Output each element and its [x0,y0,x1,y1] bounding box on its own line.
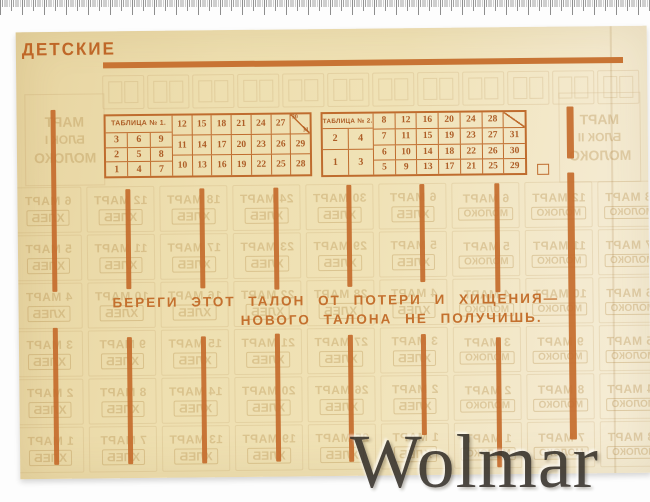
ruler-long-ticks [0,0,650,15]
table-cell: 4 [347,129,373,149]
ghost-coupon-text: 30 МАРТХЛЕБ [312,191,366,224]
ghost-coupon: 6 МАРТХЛЕБ [378,183,446,230]
ghost-glyph-box [349,79,363,101]
table-row: 7111519232731 [374,127,525,145]
table-title: ТАБЛИЦА № 1. [106,116,172,133]
table-cell: 29 [290,134,310,154]
table-cell: 21 [460,159,482,173]
ghost-coupon-text: 11 МАРТХЛЕБ [94,241,148,274]
table-row: 147 [106,161,172,176]
ghost-coupon: 23 МАРТХЛЕБ [233,232,301,279]
table-cell: 27 [481,128,503,143]
table-cell: 19 [231,155,251,175]
ghost-glyph-box [108,81,122,103]
ghost-coupon: 2 МАРТХЛЕБ [16,379,84,426]
table-cell: 25 [482,159,504,173]
ghost-coupon-text: 12 МАРТХЛЕБ [93,193,147,226]
table-cell: 3 [347,149,373,175]
table-cell: 14 [416,145,438,159]
ghost-coupon: 14 МАРТМОЛОКО [599,373,650,420]
table-cell: 14 [191,135,211,155]
ghost-stamp-text: МОЛОКО [34,149,97,166]
ghost-glyph-box [423,78,437,100]
table-cell: 10 [173,156,192,176]
show-through-pattern: МАРТБЛОК IМОЛОКОМАРТБЛОК IIМОЛОКО6 МАРТХ… [16,26,650,480]
ghost-coupon: 6 МАРТХЛЕБ [16,187,82,234]
wolmar-watermark: Wolmar [350,424,599,500]
ghost-coupon: 2 МАРТМОЛОКО [453,374,521,421]
cut-mark-bar [419,184,425,282]
ghost-coupon-text: 5 МАРТМОЛОКО [459,239,514,269]
table-row: 11141720232629 [173,133,310,155]
ghost-coupon: 12 МАРТМОЛОКО [524,181,592,228]
sheet-title: ДЕТСКИЕ [22,39,116,61]
ghost-coupon: 27 МАРТХЛЕБ [307,328,375,375]
ghost-coupon: 1 МАРТХЛЕБ [16,427,84,474]
ghost-stamp-small [372,72,414,106]
table-cell: 16 [211,155,231,175]
ghost-coupon: 7 МАРТХЛЕБ [89,426,157,473]
slogan-line-2: НОВОГО ТАЛОНА НЕ ПОЛУЧИШЬ. [241,310,543,328]
ghost-coupon-text: 20 МАРТХЛЕБ [241,383,295,416]
table-cell: 16 [416,113,438,128]
ghost-coupon: 14 МАРТХЛЕБ [161,377,229,424]
ghost-coupon-text: 17 МАРТХЛЕБ [167,240,221,273]
table-row: 24 [323,128,373,149]
measurement-ruler [0,0,650,16]
ghost-stamp-small [102,75,144,109]
table-cell: 28 [481,112,503,127]
ghost-coupon: 3 МАРТМОЛОКО [453,326,521,373]
table-cell: 24 [459,112,481,127]
ghost-coupon: 3 МАРТХЛЕБ [16,331,84,378]
table-cell: 8 [150,148,172,162]
ghost-coupon-text: 3 МАРТХЛЕБ [25,338,72,370]
ghost-coupon-text: 29 МАРТХЛЕБ [313,239,367,272]
ghost-stamp-text: МОЛОКО [569,147,632,164]
table-cell: 20 [438,113,460,128]
ghost-coupon-text: 5 МАРТХЛЕБ [24,242,71,274]
ghost-glyph-box [333,79,347,101]
ghost-coupon: 17 МАРТХЛЕБ [160,233,228,280]
ghost-coupon: 20 МАРТХЛЕБ [234,376,302,423]
table-cell: 13 [192,156,212,176]
table-right-block: 1215182124273031111417202326291013161922… [172,114,311,175]
ghost-coupon-text: 2 МАРТХЛЕБ [26,386,73,418]
small-stamp-box [537,164,549,175]
ghost-coupon: 19 МАРТХЛЕБ [235,424,303,471]
ghost-glyph-box [484,77,498,99]
table-cell: 12 [173,115,192,134]
ghost-stamp-small [462,71,504,105]
table-cell: 1 [106,163,127,177]
table-right-block: 8121620242871115192327316101418222630591… [373,112,526,175]
ghost-glyph-box [439,78,453,100]
ghost-glyph-box [394,78,408,100]
ghost-coupon: 18 МАРТХЛЕБ [159,185,227,232]
coupon-sheet: МАРТБЛОК IМОЛОКОМАРТБЛОК IIМОЛОКО6 МАРТХ… [16,26,650,480]
ghost-glyph-box [529,77,543,99]
ghost-coupon: 15 МАРТХЛЕБ [161,329,229,376]
ration-table-2: ТАБЛИЦА № 2.2413812162024287111519232731… [321,110,528,177]
table-cell: 29 [503,159,525,173]
table-cell: 25 [271,155,291,175]
ghost-coupon: 16 МАРТМОЛОКО [598,277,650,324]
cut-mark-bar [125,189,131,289]
table-row: 1215182124273031 [173,114,310,134]
table-cell: 26 [270,134,290,154]
table-cell: 1 [323,150,348,176]
ghost-coupon: 13 МАРТХЛЕБ [162,425,230,472]
ghost-coupon: 11 МАРТМОЛОКО [525,229,593,276]
ghost-coupon: 6 МАРТМОЛОКО [451,182,519,229]
table-cell: 22 [251,155,271,175]
ghost-coupon: 30 МАРТХЛЕБ [305,184,373,231]
ghost-coupon-text: 9 МАРТХЛЕБ [98,337,145,369]
ghost-coupon-text: 15 МАРТХЛЕБ [168,336,222,369]
ghost-coupon-text: 24 МАРТХЛЕБ [239,191,293,224]
table-cell: 28 [290,155,310,175]
ghost-stamp-text: МАРТ [580,111,620,127]
table-cell: 23 [251,134,271,154]
ghost-coupon-text: 1 МАРТХЛЕБ [26,434,73,466]
table-cell: 17 [211,135,231,155]
table-cell: 18 [211,115,231,134]
table-cell: 15 [191,115,211,134]
table-cell: 12 [394,113,416,128]
table-row: 258 [106,147,172,162]
ghost-stamp-small [417,72,459,106]
ration-table-1: ТАБЛИЦА № 1.3692581471215182124273031111… [104,112,313,178]
table-cell: 19 [438,129,460,144]
ghost-stamp-small [327,73,369,107]
ghost-coupon-text: 21 МАРТХЛЕБ [241,335,295,368]
ghost-glyph-box [153,81,167,103]
ghost-coupon-text: 8 МАРТХЛЕБ [99,385,146,417]
ghost-coupon-text: 6 МАРТХЛЕБ [389,190,436,222]
ghost-stamp-text: БЛОК II [578,130,622,144]
table-cell: 5 [374,160,395,174]
ghost-coupon: 29 МАРТХЛЕБ [306,232,374,279]
ghost-glyph-box [378,78,392,100]
ghost-stamp-small [507,71,549,105]
ghost-coupon-text: 11 МАРТМОЛОКО [532,238,587,268]
ghost-coupon-text: 12 МАРТМОЛОКО [531,190,586,220]
ghost-coupon-text: 27 МАРТХЛЕБ [314,335,368,368]
scanned-photo: МАРТБЛОК IМОЛОКОМАРТБЛОК IIМОЛОКО6 МАРТХ… [0,0,650,502]
ghost-coupon: 5 МАРТХЛЕБ [379,231,447,278]
ghost-glyph-box [124,81,138,103]
ghost-coupon: 13 МАРТМОЛОКО [600,421,650,468]
ghost-glyph-box [259,80,273,102]
ghost-coupon: 8 МАРТХЛЕБ [88,378,156,425]
ghost-coupon: 21 МАРТХЛЕБ [234,328,302,375]
ghost-coupon: 2 МАРТХЛЕБ [380,375,448,422]
ghost-coupon-text: 6 МАРТМОЛОКО [458,191,513,221]
table-row: 10131619222528 [173,154,310,176]
table-cell: 6 [374,145,395,159]
table-cell: 27 [270,114,290,133]
table-cell [503,112,525,127]
table-cell: 9 [395,160,417,174]
ghost-stamp-small [282,73,324,107]
ghost-glyph-box [198,80,212,102]
table-cell: 23 [460,128,482,143]
ghost-coupon: 26 МАРТХЛЕБ [307,376,375,423]
table-cell: 2 [106,148,127,162]
table-cell: 22 [460,144,482,158]
ghost-coupon-text: 7 МАРТХЛЕБ [99,433,146,465]
ghost-coupon-text: 18 МАРТХЛЕБ [166,192,220,225]
ghost-coupon-text: 14 МАРТХЛЕБ [168,384,222,417]
split-cell-value: 30 [292,114,298,120]
ghost-stamp-small [192,74,234,108]
ghost-coupon-text: 19 МАРТХЛЕБ [242,431,296,464]
ghost-coupon-text: 26 МАРТХЛЕБ [314,383,368,416]
ghost-coupon-text: 3 МАРТХЛЕБ [390,334,437,366]
table-cell: 3 [106,133,127,147]
ghost-coupon: 11 МАРТХЛЕБ [87,234,155,281]
table-cell: 2 [323,129,348,149]
table-row: 369 [106,132,172,148]
split-cell-value: 31 [303,127,309,133]
ghost-coupon-text: 4 МАРТХЛЕБ [25,290,72,322]
table-cell: 13 [416,160,438,174]
ghost-coupon: 4 МАРТХЛЕБ [16,283,83,330]
ghost-coupon-text: 2 МАРТМОЛОКО [460,383,515,413]
ghost-coupon: 8 МАРТМОЛОКО [526,373,594,420]
ghost-coupon-text: 13 МАРТХЛЕБ [169,432,223,465]
table-cell: 11 [173,135,192,155]
ghost-coupon-text: 2 МАРТХЛЕБ [391,382,438,414]
table-row: 591317212529 [374,158,525,175]
cut-mark-bar [199,188,205,288]
table-cell: 20 [231,135,251,155]
table-row: 13 [323,148,373,175]
ghost-glyph-box [468,77,482,99]
table-cell: 17 [438,160,460,174]
table-cell: 24 [250,115,270,134]
table-cell: 15 [416,129,438,144]
ghost-coupon-text: 3 МАРТМОЛОКО [460,335,515,365]
ghost-coupon: 5 МАРТХЛЕБ [16,235,83,282]
cut-mark-bar [566,106,574,158]
ghost-glyph-box [214,80,228,102]
ghost-coupon-text: 9 МАРТМОЛОКО [533,334,588,364]
ghost-coupon: 9 МАРТХЛЕБ [88,330,156,377]
ghost-glyph-box [288,79,302,101]
ghost-glyph-box [304,79,318,101]
ghost-coupon: 15 МАРТМОЛОКО [599,325,650,372]
table-left-block: ТАБЛИЦА № 2.2413 [323,114,374,176]
table-title: ТАБЛИЦА № 2. [323,114,373,129]
table-cell: 11 [394,129,416,144]
ghost-coupon: 24 МАРТХЛЕБ [232,184,300,231]
ghost-glyph-box [513,77,527,99]
table-cell: 4 [127,162,149,176]
ghost-coupon-text: 6 МАРТХЛЕБ [24,194,71,226]
table-cell: 6 [127,133,149,147]
table-left-block: ТАБЛИЦА № 1.369258147 [106,116,173,177]
ghost-stamp-small [237,74,279,108]
ghost-coupon: 3 МАРТХЛЕБ [380,327,448,374]
cut-mark-bar [346,185,352,287]
table-cell: 18 [438,145,460,159]
table-row: 81216202428 [374,112,525,129]
table-row: 6101418222630 [374,143,525,160]
table-cell: 7 [374,129,395,144]
table-cell: 3031 [290,114,310,133]
ghost-coupon: 12 МАРТХЛЕБ [86,186,154,233]
table-cell: 10 [395,145,417,159]
cut-mark-bar [273,188,279,290]
ghost-coupon-text: 5 МАРТХЛЕБ [389,238,436,270]
ghost-coupon: 17 МАРТМОЛОКО [598,229,650,276]
ghost-coupon: 18 МАРТМОЛОКО [597,181,650,228]
table-cell: 26 [481,144,503,158]
table-cell: 30 [503,144,525,158]
ghost-glyph-box [243,80,257,102]
table-cell: 21 [231,115,251,134]
ghost-coupon: 9 МАРТМОЛОКО [526,325,594,372]
table-cell: 9 [149,133,171,147]
ghost-stamp-small [147,75,189,109]
table-cell: 7 [150,162,172,176]
ghost-coupon: 5 МАРТМОЛОКО [452,230,520,277]
ghost-coupon-text: 23 МАРТХЛЕБ [240,239,294,272]
ghost-stamp-large: МАРТБЛОК IМОЛОКО [24,93,105,186]
table-cell: 5 [127,148,149,162]
table-cell: 31 [503,128,525,143]
table-cell: 8 [374,113,395,128]
ghost-coupon-text: 8 МАРТМОЛОКО [533,382,588,412]
ghost-glyph-box [169,81,183,103]
